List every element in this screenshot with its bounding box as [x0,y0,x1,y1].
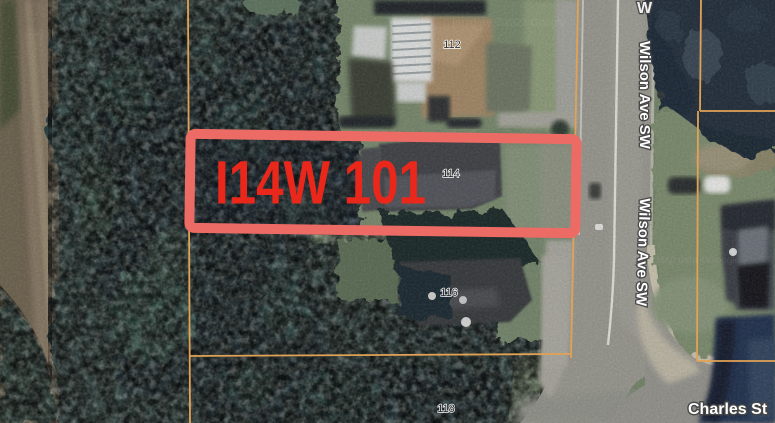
svg-text:Map data ©Google: Map data ©Google [656,255,741,266]
svg-text:Charles St: Charles St [688,401,768,418]
svg-text:Imagery ©2023 Google: Imagery ©2023 Google [452,17,566,29]
svg-text:I14W 101: I14W 101 [215,149,426,218]
svg-text:118: 118 [437,403,455,415]
svg-text:116: 116 [440,287,458,299]
svg-text:112: 112 [443,39,461,51]
svg-text:114: 114 [442,168,460,180]
svg-text:Wilson Ave SW: Wilson Ave SW [636,41,653,150]
